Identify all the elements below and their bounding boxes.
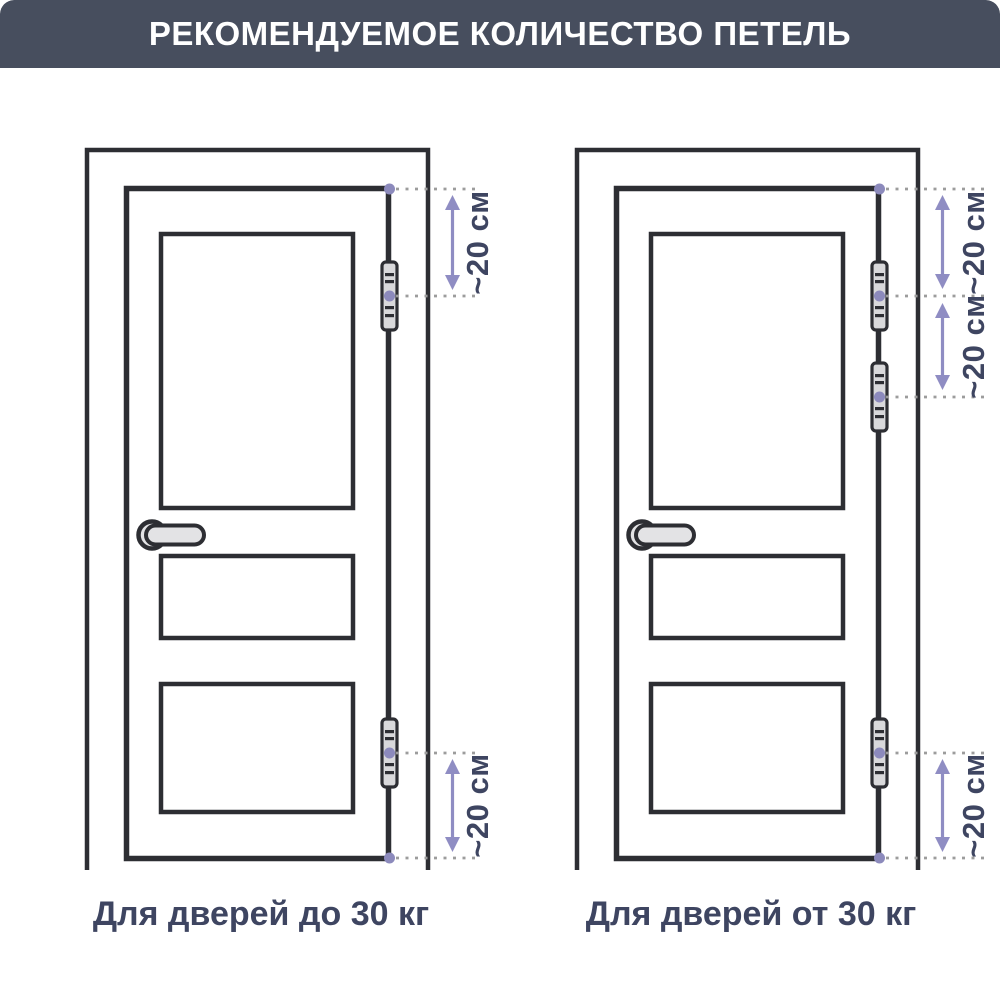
hinge-stripe [385,763,394,766]
dimension-arrow-top [935,195,950,289]
reference-dot [384,853,395,864]
dimension-arrow-bottom [445,759,460,852]
hinge-stripe [875,730,884,733]
hinge-stripe [875,273,884,276]
arrowhead-down [445,837,460,852]
handle-lever [146,526,204,545]
reference-dot [384,184,395,195]
dimension-label: ~20 см [956,190,991,294]
hinge-diagram-canvas: ~20 см ~20 см [0,0,1000,888]
door-panel-bottom [651,684,843,812]
hinge-stripe [875,381,884,384]
arrowhead-down [935,837,950,852]
door-panel-middle [161,556,353,638]
handle-lever [636,526,694,545]
infographic-card: РЕКОМЕНДУЕМОЕ КОЛИЧЕСТВО ПЕТЕЛЬ [0,0,1000,1000]
hinge-stripe [385,280,394,283]
dimension-arrow-bottom [935,759,950,852]
hinge-stripe [385,273,394,276]
dimension-label: ~20 см [956,294,991,398]
door-panel-bottom [161,684,353,812]
door-panel-middle [651,556,843,638]
reference-dot [874,184,885,195]
reference-dot [874,853,885,864]
hinge-stripe [875,374,884,377]
door-panel-top [651,234,843,508]
caption-light-doors: Для дверей до 30 кг [11,888,511,940]
hinge-stripe [385,730,394,733]
arrowhead-down [935,274,950,289]
door-diagram-light: ~20 см ~20 см [87,150,495,870]
hinge-stripe [875,314,884,317]
hinge-stripe [875,280,884,283]
door-handle [139,522,205,549]
reference-dot [874,392,885,403]
arrowhead-up [445,195,460,210]
hinge-stripe [385,314,394,317]
arrowhead-up [935,759,950,774]
hinge-stripe [875,407,884,410]
arrowhead-down [445,275,460,290]
door-panel-top [161,234,353,508]
caption-heavy-doors: Для дверей от 30 кг [501,888,1000,940]
door-diagram-heavy: ~20 см ~20 см ~20 см [577,150,991,870]
hinge-stripe [385,306,394,309]
dimension-label: ~20 см [460,753,495,857]
reference-dot [874,748,885,759]
dimension-arrow-top [445,195,460,290]
hinge-stripe [875,771,884,774]
hinge-stripe [875,415,884,418]
arrowhead-down [935,375,950,390]
reference-dot [384,291,395,302]
hinge-stripe [875,306,884,309]
reference-dot [874,291,885,302]
reference-dot [384,748,395,759]
hinge-stripe [875,737,884,740]
arrowhead-up [935,303,950,318]
hinge-stripe [385,737,394,740]
hinge-stripe [875,763,884,766]
dimension-label: ~20 см [956,753,991,857]
dimension-arrow-middle [935,303,950,390]
arrowhead-up [445,759,460,774]
door-handle [629,522,695,549]
hinge-stripe [385,771,394,774]
arrowhead-up [935,195,950,210]
dimension-label: ~20 см [460,190,495,294]
